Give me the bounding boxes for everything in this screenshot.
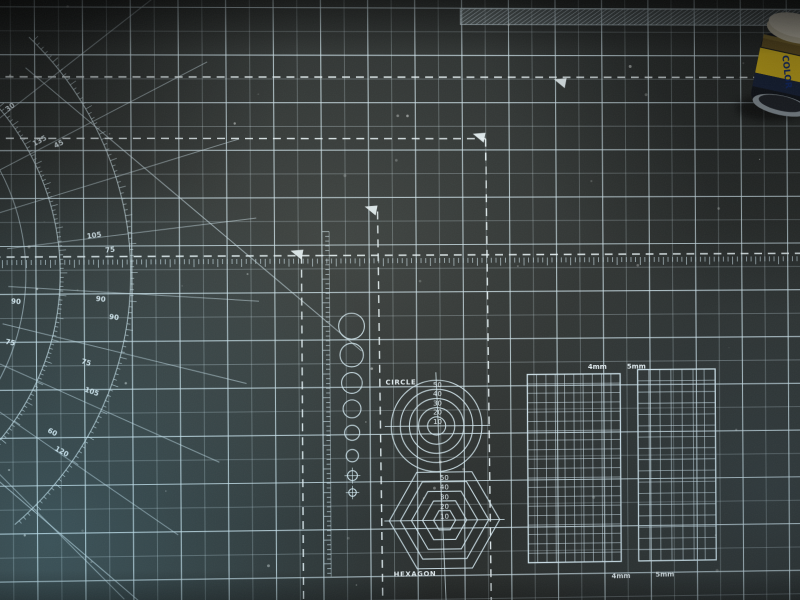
protractor-tick bbox=[36, 505, 41, 510]
protractor-tick bbox=[48, 353, 51, 354]
debris-speck bbox=[370, 367, 373, 370]
protractor-tick bbox=[53, 58, 58, 63]
protractor-tick bbox=[22, 410, 25, 412]
grid-line bbox=[0, 149, 800, 150]
protractor-tick bbox=[50, 201, 53, 202]
protractor-tick bbox=[20, 135, 23, 137]
protractor-tick bbox=[91, 117, 94, 119]
grid-line bbox=[485, 0, 489, 600]
protractor-angle-label: 105 bbox=[83, 385, 100, 398]
grid-line bbox=[106, 0, 110, 600]
protractor-tick bbox=[110, 158, 117, 160]
dashed-guide-lines bbox=[0, 77, 800, 600]
grid-line bbox=[320, 0, 324, 600]
fine-grid-line bbox=[638, 403, 715, 404]
photo-of-cutting-mat: 3013545105759090907575105601205040302010… bbox=[0, 0, 800, 600]
fine-grid-line bbox=[693, 369, 694, 560]
hatch-strip bbox=[460, 9, 800, 26]
mat-graphics: 3013545105759090907575105601205040302010… bbox=[0, 0, 800, 600]
grid-line bbox=[625, 0, 629, 600]
protractor-tick bbox=[55, 326, 58, 327]
grid-line bbox=[0, 547, 800, 559]
grid-line bbox=[344, 0, 348, 600]
dashed-line bbox=[301, 256, 303, 600]
fine-grid-line bbox=[527, 411, 620, 412]
grid-line bbox=[130, 0, 134, 600]
protractor-tick bbox=[124, 209, 127, 210]
grid-line bbox=[578, 0, 582, 600]
debris-speck bbox=[247, 273, 249, 275]
debris-speck bbox=[629, 65, 632, 68]
grid-line bbox=[0, 243, 800, 247]
protractor-tick bbox=[42, 179, 45, 180]
debris-speck bbox=[406, 115, 409, 118]
debris-speck bbox=[433, 487, 436, 490]
protractor-tick bbox=[52, 340, 59, 342]
fine-grid-line bbox=[671, 369, 672, 560]
grid-major-lines bbox=[0, 0, 800, 600]
protractor-angle-label: 45 bbox=[52, 137, 65, 150]
protractor-tick bbox=[102, 138, 105, 139]
fine-grid-line bbox=[639, 526, 716, 527]
debris-speck bbox=[395, 159, 398, 162]
grid-line bbox=[740, 0, 744, 600]
protractor-tick bbox=[113, 379, 116, 380]
debris-speck bbox=[590, 180, 592, 182]
grid-line bbox=[82, 0, 86, 600]
debris-speck bbox=[66, 5, 69, 8]
protractor-tick bbox=[49, 348, 52, 349]
protractor-tick bbox=[42, 369, 45, 370]
debris-speck bbox=[9, 74, 11, 76]
dashed-line bbox=[0, 77, 800, 78]
protractor-tick bbox=[25, 141, 31, 145]
protractor-radial bbox=[0, 0, 163, 146]
protractor-tick bbox=[123, 346, 126, 347]
protractor-tick bbox=[29, 398, 32, 400]
protractor-tick bbox=[37, 43, 40, 45]
fine-grid-line bbox=[528, 439, 621, 440]
grid-line bbox=[508, 0, 512, 600]
debris-speck bbox=[24, 534, 26, 536]
fine-grid-line bbox=[638, 425, 715, 426]
protractor-tick bbox=[104, 143, 107, 144]
fine-grid-line bbox=[638, 481, 715, 482]
debris-speck bbox=[356, 584, 358, 586]
small-circle bbox=[339, 313, 365, 339]
grid-line bbox=[532, 0, 536, 600]
grid-line bbox=[717, 0, 721, 600]
fine-grid-line bbox=[638, 448, 715, 449]
protractor-tick bbox=[108, 154, 111, 155]
fine-grid-line bbox=[528, 486, 621, 487]
debris-speck bbox=[419, 280, 422, 283]
protractor-tick bbox=[128, 318, 131, 319]
debris-speck bbox=[257, 93, 259, 95]
protractor-tick bbox=[12, 121, 18, 125]
grid-line bbox=[694, 0, 698, 600]
protractor-tick bbox=[117, 368, 120, 369]
protractor-tick bbox=[115, 374, 118, 375]
fine-grid-line bbox=[528, 477, 621, 478]
grid-block-label-5mm-top: 5mm bbox=[627, 363, 646, 371]
circle-ring-label: 20 bbox=[433, 408, 442, 417]
protractor-tick bbox=[129, 243, 136, 244]
grid-block-label-4mm-bottom: 4mm bbox=[612, 572, 631, 580]
debris-speck bbox=[36, 288, 38, 290]
protractor-tick bbox=[125, 335, 128, 336]
protractor-tick bbox=[123, 204, 126, 205]
fine-grid-line bbox=[528, 468, 621, 469]
circle-template: 5040302010 bbox=[384, 372, 491, 600]
protractor-tick bbox=[76, 456, 79, 458]
protractor-tick bbox=[79, 451, 82, 453]
debris-speck bbox=[507, 24, 510, 27]
ruler-spine bbox=[329, 232, 331, 577]
fine-grid-line bbox=[527, 392, 620, 393]
protractor-tick bbox=[19, 521, 21, 524]
protractor-tick bbox=[114, 170, 117, 171]
protractor-tick bbox=[70, 81, 76, 85]
fine-grid-line bbox=[638, 436, 715, 437]
dashed-line bbox=[0, 253, 800, 257]
protractor-tick bbox=[35, 161, 41, 164]
small-circles-column bbox=[339, 313, 366, 499]
debris-speck bbox=[636, 264, 639, 267]
dashed-line-markers bbox=[289, 78, 567, 260]
grid-line bbox=[555, 0, 559, 600]
protractor-tick bbox=[130, 301, 137, 302]
debris-speck bbox=[517, 265, 519, 267]
grid-minor-lines bbox=[0, 0, 800, 600]
protractor-tick bbox=[41, 47, 44, 49]
hexagon-ring-label: 50 bbox=[440, 473, 449, 482]
circle-ring-label: 10 bbox=[433, 417, 442, 426]
fine-grid-line bbox=[682, 369, 683, 560]
protractor-tick bbox=[46, 188, 49, 189]
protractor-angle-label: 90 bbox=[95, 294, 106, 304]
protractor-tick bbox=[57, 237, 61, 238]
protractor-tick bbox=[7, 116, 10, 118]
hexagon-ring-label: 30 bbox=[440, 492, 449, 501]
debris-speck bbox=[182, 285, 183, 286]
fine-grid-line bbox=[638, 380, 715, 381]
debris-speck bbox=[717, 207, 720, 210]
protractor-tick bbox=[18, 131, 21, 133]
debris-speck bbox=[645, 93, 648, 96]
protractor-tick bbox=[49, 56, 52, 58]
protractor-tick bbox=[93, 426, 96, 428]
protractor-tick bbox=[54, 331, 57, 332]
fine-grid-line bbox=[527, 402, 620, 403]
debris-speck bbox=[343, 174, 346, 177]
protractor-angle-label: 75 bbox=[105, 245, 116, 255]
corner-marker bbox=[365, 206, 378, 216]
fine-grid-line bbox=[704, 369, 705, 560]
protractor-tick bbox=[48, 492, 51, 494]
cutting-mat-surface: 3013545105759090907575105601205040302010… bbox=[0, 0, 800, 600]
protractor-tick bbox=[120, 193, 123, 194]
protractor-tick bbox=[62, 475, 65, 477]
fine-grid-line bbox=[638, 414, 715, 415]
hexagon-template-title: HEXAGON bbox=[394, 570, 437, 579]
circle-template-title: CIRCLE bbox=[386, 378, 417, 386]
protractor-tick bbox=[51, 344, 54, 345]
protractor-tick bbox=[96, 421, 99, 423]
hatch-strip-rect bbox=[460, 9, 800, 26]
protractor-tick bbox=[121, 352, 124, 353]
fine-grid-line bbox=[527, 383, 620, 384]
grid-line bbox=[0, 430, 800, 439]
protractor-tick bbox=[77, 92, 80, 94]
hexagon-ring-label: 20 bbox=[440, 502, 449, 511]
grid-line bbox=[0, 7, 800, 9]
fine-grid-line bbox=[638, 492, 715, 493]
protractor-tick bbox=[37, 167, 40, 168]
fine-grid-line bbox=[660, 369, 661, 560]
protractor-angle-label: 105 bbox=[86, 230, 102, 241]
diagonal-line bbox=[26, 68, 362, 354]
grid-line bbox=[0, 407, 800, 415]
debris-speck bbox=[728, 347, 729, 348]
protractor-tick bbox=[17, 417, 20, 419]
small-circle bbox=[343, 400, 361, 418]
hexagon-ring-label: 40 bbox=[440, 483, 449, 492]
protractor-tick bbox=[47, 192, 50, 193]
protractor-tick bbox=[40, 374, 43, 375]
protractor-tick bbox=[24, 406, 27, 408]
protractor-tick bbox=[6, 432, 9, 434]
debris-speck bbox=[28, 245, 31, 248]
protractor-tick bbox=[44, 182, 51, 184]
debris-speck bbox=[8, 469, 10, 471]
protractor-tick bbox=[73, 88, 76, 90]
debris-speck bbox=[44, 221, 45, 222]
protractor-tick bbox=[127, 227, 130, 228]
protractor-radial bbox=[0, 358, 219, 465]
protractor-tick bbox=[91, 431, 94, 433]
protractor-tick bbox=[52, 210, 55, 211]
protractor-tick bbox=[103, 406, 106, 407]
grid-line bbox=[367, 0, 371, 600]
fine-grid-line bbox=[639, 515, 716, 516]
protractor-tick bbox=[51, 204, 58, 206]
grid-block-label-5mm-bottom: 5mm bbox=[655, 570, 674, 578]
grid-line bbox=[601, 0, 605, 600]
protractor-tick bbox=[119, 186, 126, 188]
fine-grid-line bbox=[638, 391, 715, 392]
fine-grid-line bbox=[638, 504, 715, 505]
circle-ring-label: 40 bbox=[433, 389, 442, 398]
debris-speck bbox=[165, 490, 166, 491]
grid-line bbox=[0, 31, 800, 33]
debris-speck bbox=[396, 114, 399, 117]
protractor-tick bbox=[117, 181, 120, 182]
grid-line bbox=[0, 220, 800, 223]
debris-speck bbox=[77, 289, 79, 291]
protractor-tick bbox=[119, 363, 122, 364]
protractor-tick bbox=[98, 416, 101, 418]
protractor-tick bbox=[112, 384, 119, 386]
grid-line bbox=[0, 453, 800, 462]
protractor-tick bbox=[53, 214, 56, 215]
corner-marker bbox=[290, 250, 303, 260]
fine-grid-line bbox=[649, 370, 650, 561]
debris-speck bbox=[90, 561, 92, 563]
protractor-tick bbox=[94, 122, 97, 124]
protractor-tick bbox=[66, 470, 69, 472]
protractor-tick bbox=[31, 394, 34, 396]
fine-grid-line bbox=[528, 449, 621, 450]
grid-line bbox=[297, 0, 301, 600]
protractor-tick bbox=[58, 309, 62, 310]
protractor-tick bbox=[80, 97, 83, 99]
protractor-tick bbox=[44, 497, 47, 499]
protractor-tick bbox=[89, 112, 92, 114]
debris-speck bbox=[125, 382, 128, 385]
protractor-tick bbox=[31, 155, 34, 157]
grid-line bbox=[391, 0, 395, 600]
grid-block-label-4mm-top: 4mm bbox=[588, 363, 607, 371]
protractor-tick bbox=[28, 513, 30, 516]
grid-line bbox=[0, 266, 800, 270]
protractor-tick bbox=[82, 446, 85, 448]
grid-line bbox=[0, 336, 800, 342]
fine-grid-line bbox=[528, 430, 621, 431]
protractor-tick bbox=[47, 357, 50, 358]
protractor-tick bbox=[86, 106, 92, 110]
fine-grid-line bbox=[528, 421, 621, 422]
grid-line bbox=[0, 79, 800, 80]
grid-line bbox=[0, 196, 800, 198]
grid-line bbox=[461, 0, 465, 600]
protractor-tick bbox=[110, 390, 113, 391]
protractor-tick bbox=[40, 501, 43, 503]
protractor-tick bbox=[105, 401, 108, 402]
protractor-tick bbox=[38, 378, 41, 379]
debris-speck bbox=[742, 62, 744, 64]
protractor-tick bbox=[41, 175, 44, 176]
protractor-tick bbox=[23, 517, 25, 520]
circle-ring-label: 50 bbox=[433, 380, 442, 389]
grid-line bbox=[0, 523, 800, 534]
grid-line bbox=[154, 0, 158, 600]
protractor-angle-label: 75 bbox=[5, 337, 17, 348]
fine-grid-line bbox=[638, 459, 715, 460]
grid-line bbox=[0, 55, 800, 56]
small-circle bbox=[346, 449, 358, 461]
protractor-tick bbox=[45, 361, 52, 363]
debris-speck bbox=[267, 564, 270, 567]
protractor-tick bbox=[106, 149, 109, 150]
protractor-tick bbox=[69, 465, 72, 467]
grid-line bbox=[225, 0, 229, 600]
debris-speck bbox=[81, 529, 84, 532]
grid-line bbox=[178, 0, 182, 600]
debris-speck bbox=[365, 421, 367, 423]
small-circle bbox=[342, 373, 363, 394]
grid-line bbox=[273, 0, 277, 600]
protractor-tick bbox=[15, 127, 18, 129]
protractor-angle-label: 60 bbox=[46, 426, 59, 439]
protractor-tick bbox=[55, 223, 58, 224]
protractor-tick bbox=[56, 322, 59, 323]
fine-4mm-grid bbox=[527, 374, 621, 563]
protractor-tick bbox=[51, 488, 54, 490]
protractor-tick bbox=[9, 428, 12, 430]
protractor-tick bbox=[26, 402, 32, 406]
protractor-tick bbox=[120, 357, 127, 359]
debris-speck bbox=[109, 133, 110, 134]
fine-5mm-grid bbox=[638, 369, 717, 561]
protractor-tick bbox=[39, 171, 42, 172]
grid-line bbox=[0, 313, 800, 319]
protractor-tick bbox=[4, 435, 7, 437]
grid-line bbox=[202, 0, 206, 600]
protractor-angle-label: 90 bbox=[11, 296, 22, 306]
grid-line bbox=[0, 290, 800, 295]
debris-speck bbox=[759, 159, 760, 160]
protractor-tick bbox=[1, 439, 6, 444]
grid-line bbox=[0, 126, 800, 127]
dashed-line bbox=[378, 211, 383, 600]
protractor-angle-label: 120 bbox=[53, 444, 70, 459]
hexagon-ring-label: 10 bbox=[440, 512, 449, 521]
debris-speck bbox=[735, 429, 737, 431]
circle-ring-label: 30 bbox=[433, 398, 442, 407]
protractor-tick bbox=[127, 324, 130, 325]
protractor-tick bbox=[27, 146, 30, 148]
protractor-tick bbox=[33, 36, 38, 41]
fine-grid-line bbox=[638, 470, 715, 471]
fine-grid-line bbox=[528, 458, 621, 459]
protractor-tick bbox=[45, 51, 48, 53]
grid-line bbox=[0, 173, 800, 175]
corner-marker bbox=[473, 133, 486, 143]
dashed-line bbox=[0, 138, 486, 140]
grid-line bbox=[249, 0, 253, 600]
debris-speck bbox=[233, 122, 235, 124]
protractor-tick bbox=[2, 109, 5, 111]
protractor-tick bbox=[112, 165, 115, 166]
protractor-tick bbox=[63, 74, 66, 76]
protractor-tick bbox=[54, 219, 57, 220]
protractor-angle-label: 90 bbox=[109, 312, 120, 322]
protractor-tick bbox=[108, 395, 111, 396]
fine-grid-line bbox=[639, 537, 716, 538]
